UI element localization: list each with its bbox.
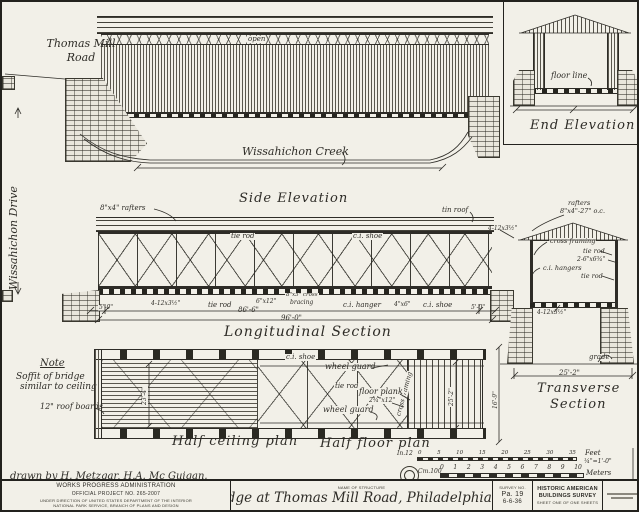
end-elevation-floor — [531, 88, 621, 94]
inch-tick: 15 — [479, 450, 486, 456]
transverse-title-line2: Section — [550, 398, 606, 412]
note-heading: Note — [40, 359, 65, 370]
tie-rod-transverse-label2: tie rod — [580, 273, 604, 280]
side-elevation-roof — [97, 16, 493, 34]
floor-plank-label: floor plank — [358, 388, 404, 396]
cm-tick: 6 — [521, 464, 525, 471]
inch-tick: 25 — [524, 450, 531, 456]
feet-label: Feet — [585, 450, 601, 457]
dim-25-2: 25'-2" — [558, 370, 581, 377]
side-elevation-floor-band — [101, 113, 490, 118]
panel-divider-vertical — [503, 2, 504, 145]
floor-line-label: floor line — [550, 72, 588, 80]
cm-tick: 7 — [534, 464, 538, 471]
end-elevation-left-abutment — [513, 70, 535, 106]
cm-scale-ticks: 0 1 2 3 4 5 6 7 8 9 10 — [440, 464, 582, 471]
inch-tick: 30 — [546, 450, 553, 456]
half-floor-plan-title: Half floor plan — [320, 437, 431, 451]
bracing-label: bracing — [289, 300, 314, 306]
beam-2-6x6-label: 2-6"x6¾" — [576, 257, 606, 263]
brace-6x12-label: 6"x12" — [255, 299, 277, 305]
title-block-agency-cell: WORKS PROGRESS ADMINISTRATION OFFICIAL P… — [2, 481, 230, 510]
ci-shoe-plan-label: c.i. shoe — [285, 354, 316, 361]
habs-line1: HISTORIC AMERICAN — [537, 486, 598, 493]
wheel-guard-bottom-label: wheel guard — [322, 406, 375, 414]
cross-8x5-label: 8"x5" cross — [285, 293, 319, 299]
rafters-transverse-label1: rafters — [568, 200, 590, 207]
hanger-4x6-label: 4"x6" — [393, 302, 412, 308]
dim-16-9: 16'-9" — [493, 390, 499, 410]
left-margin-stub-lower — [2, 290, 13, 302]
posts-dim-transverse-left: 4-12x3½" — [488, 226, 517, 232]
dim-25-2-plan: 25'-2" — [449, 387, 455, 407]
index-cell-line — [611, 497, 634, 499]
left-margin-road-stub — [2, 76, 15, 90]
end-elevation-right-abutment — [617, 70, 638, 106]
meters-label: Meters — [586, 470, 611, 477]
agency-line4: NATIONAL PARK SERVICE, BRANCH OF PLANS A… — [53, 503, 178, 508]
inch-tick: 10 — [456, 450, 463, 456]
right-abutment-wall — [468, 96, 500, 158]
ci-shoe-bottom-label: c.i. shoe — [422, 302, 453, 309]
longitudinal-truss — [98, 232, 492, 288]
side-elevation-open-strip — [101, 34, 489, 45]
title-block-name-cell: NAME OF STRUCTURE Bridge at Thomas Mill … — [230, 481, 492, 510]
panel-divider-horizontal — [503, 144, 639, 145]
plank-dim-label: 2¾"x12" — [368, 398, 396, 404]
half-ceiling-plan-title: Half ceiling plan — [172, 435, 298, 449]
title-block: WORKS PROGRESS ADMINISTRATION OFFICIAL P… — [2, 479, 639, 510]
longitudinal-roof — [96, 217, 494, 232]
side-elevation-title: Side Elevation — [239, 192, 348, 206]
habs-line2: BUILDINGS SURVEY — [539, 493, 597, 500]
ceiling-plan-bracing — [102, 360, 257, 428]
posts-dim-transverse-bottom: 4-12x3½" — [536, 310, 567, 316]
floor-plan-planks — [407, 360, 483, 428]
inch-tick: 35 — [569, 450, 576, 456]
inch-scale-bar — [417, 457, 577, 461]
tie-rod-top-label: tie rod — [230, 233, 255, 240]
inch-tick: 5 — [437, 450, 441, 456]
longitudinal-right-abutment — [490, 290, 514, 322]
cm-tick: 3 — [480, 464, 484, 471]
title-block-habs-cell: HISTORIC AMERICAN BUILDINGS SURVEY SHEET… — [532, 481, 602, 510]
inch-scale-ticks: 0 5 10 15 20 25 30 35 — [418, 450, 576, 456]
rafters-side-label: 8"x4" rafters — [100, 205, 146, 212]
survey-date: 6-6-36 — [503, 499, 522, 507]
structure-name: Bridge at Thomas Mill Road, Philadelphia… — [230, 490, 492, 506]
cm-tick: 1 — [453, 464, 457, 471]
cm-tick: 8 — [547, 464, 551, 471]
index-cell-line — [607, 493, 637, 495]
side-elevation-siding — [101, 45, 490, 113]
cm-tick: 9 — [561, 464, 565, 471]
dim-23-4: 23'-4" — [142, 386, 148, 406]
survey-no-value: Pa. 19 — [501, 490, 523, 499]
cm-tick: 5 — [507, 464, 511, 471]
open-label: open — [247, 36, 266, 43]
ci-hangers-label: c.i. hangers — [542, 265, 583, 272]
tie-rod-plan-label: tie rod — [334, 383, 359, 390]
cm-tick: 2 — [467, 464, 471, 471]
title-block-index-cell — [602, 481, 639, 510]
dim-86-6: 86'-6" — [237, 307, 260, 314]
agency-line1: WORKS PROGRESS ADMINISTRATION — [56, 483, 175, 491]
posts-dim-long: 4-12x3½" — [150, 301, 181, 307]
longitudinal-left-abutment — [62, 290, 100, 322]
wheel-guard-top-label: wheel guard — [324, 363, 377, 371]
cm-scale-label: Cm.100 — [418, 469, 442, 475]
end-elevation-gable — [521, 15, 629, 33]
cm-tick: 4 — [494, 464, 498, 471]
cross-framing-transverse-label: cross framing — [549, 238, 596, 245]
scale-ratio-label: ¼"=1'-0" — [584, 459, 612, 465]
cm-tick: 10 — [574, 464, 582, 471]
inch-tick: 0 — [418, 450, 422, 456]
tie-rod-transverse-label1: tie rod — [582, 248, 606, 255]
dim-5-0-left: 5'-0" — [98, 305, 114, 311]
dim-96-0: 96'-0" — [280, 315, 303, 322]
tin-roof-label: tin roof — [442, 207, 468, 214]
plan-left-end-post — [94, 349, 102, 439]
transverse-title-line1: Transverse — [537, 382, 620, 396]
creek-label: Wissahichon Creek — [242, 146, 349, 158]
road-label-line1: Thomas Mill — [26, 38, 136, 50]
dim-5-0-right: 5'-0" — [470, 305, 486, 311]
title-block-survey-cell: SURVEY NO. Pa. 19 6-6-36 — [492, 481, 532, 510]
drive-label: Wissahichon Drive — [8, 186, 20, 290]
cm-tick: 0 — [440, 464, 444, 471]
inch-scale-label: In.12 — [397, 451, 413, 457]
longitudinal-title: Longitudinal Section — [224, 325, 392, 340]
habs-drawing-sheet: Thomas Mill Road Wissahichon Drive open … — [0, 0, 639, 512]
habs-line3: SHEET ONE OF ONE SHEETS — [537, 500, 598, 505]
grade-label: grade — [588, 354, 611, 361]
tie-rod-bottom-label: tie rod — [207, 302, 232, 309]
cm-scale-bar — [440, 473, 584, 478]
road-label-line2: Road — [26, 52, 136, 64]
ci-shoe-top-label: c.i. shoe — [352, 233, 383, 240]
end-elevation-title: End Elevation — [530, 119, 635, 133]
rafters-transverse-label2: 8"x4"-27" o.c. — [560, 208, 605, 215]
transverse-floor — [530, 302, 618, 308]
inch-tick: 20 — [501, 450, 508, 456]
note-line2: similar to ceiling — [20, 383, 97, 392]
ci-hanger-label: c.i. hanger — [342, 302, 382, 309]
